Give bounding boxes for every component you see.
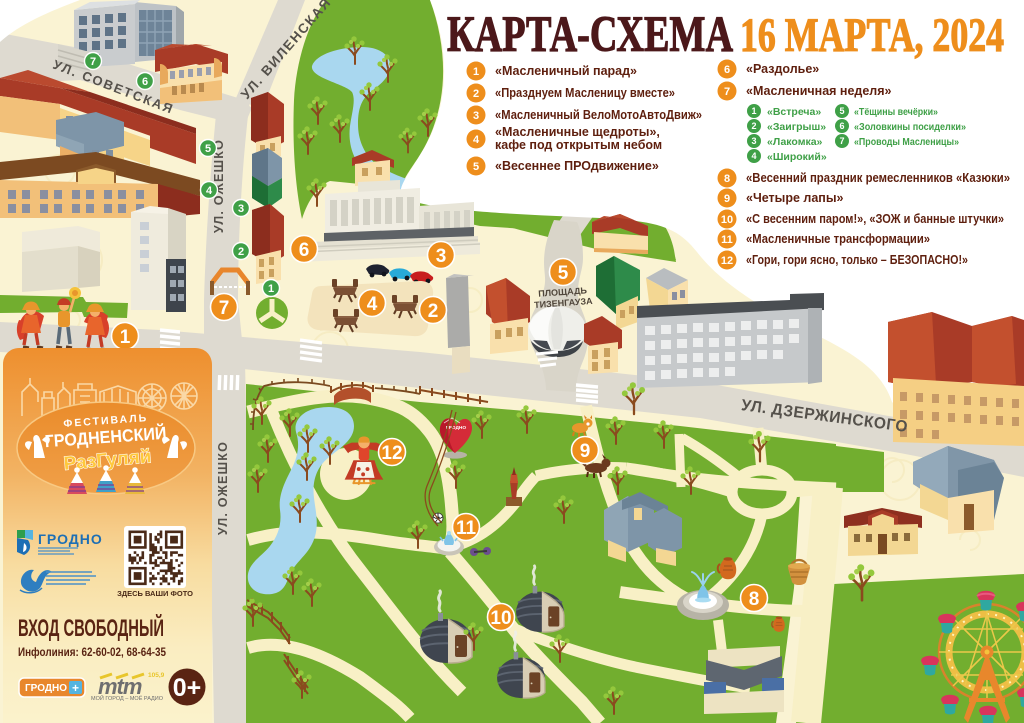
svg-text:16 МАРТА, 2024: 16 МАРТА, 2024 [740, 9, 1004, 62]
svg-text:«Масленичный ВелоМотоАвтоДвиж»: «Масленичный ВелоМотоАвтоДвиж» [495, 108, 702, 122]
svg-text:6: 6 [724, 64, 730, 76]
svg-text:ЗДЕСЬ ВАШИ ФОТО: ЗДЕСЬ ВАШИ ФОТО [117, 589, 193, 598]
svg-text:4: 4 [473, 134, 480, 146]
svg-text:3: 3 [751, 136, 756, 146]
svg-text:«Масленичная неделя»: «Масленичная неделя» [746, 84, 892, 98]
svg-text:8: 8 [724, 173, 730, 185]
svg-text:«Проводы Масленицы»: «Проводы Масленицы» [854, 136, 959, 148]
svg-text:+: + [72, 681, 79, 695]
svg-text:5: 5 [473, 161, 479, 173]
svg-text:МОЙ ГОРОД – МОЁ РАДИО: МОЙ ГОРОД – МОЁ РАДИО [91, 694, 164, 702]
svg-text:6: 6 [839, 121, 844, 131]
svg-text:6: 6 [299, 240, 310, 261]
svg-text:«Золовкины посиделки»: «Золовкины посиделки» [854, 121, 966, 133]
svg-text:«Четыре лапы»: «Четыре лапы» [746, 191, 843, 205]
svg-text:«Заигрыш»: «Заигрыш» [767, 121, 826, 133]
svg-text:2: 2 [238, 246, 244, 258]
svg-text:1: 1 [751, 106, 756, 116]
svg-text:5: 5 [205, 143, 211, 155]
svg-text:7: 7 [90, 56, 96, 68]
svg-text:3: 3 [238, 203, 244, 215]
svg-text:«Тёщины вечёрки»: «Тёщины вечёрки» [854, 106, 938, 118]
svg-text:7: 7 [724, 86, 730, 98]
svg-text:3: 3 [436, 246, 447, 267]
svg-text:КАРТА-СХЕМА: КАРТА-СХЕМА [447, 7, 733, 63]
svg-text:«Широкий»: «Широкий» [767, 151, 827, 163]
svg-text:«Встреча»: «Встреча» [767, 106, 821, 118]
svg-text:ГРОДНО: ГРОДНО [38, 531, 103, 547]
svg-text:9: 9 [724, 193, 730, 205]
svg-text:105,9: 105,9 [148, 672, 165, 679]
svg-text:«Масленичные трансформации»: «Масленичные трансформации» [746, 232, 930, 246]
svg-text:2: 2 [428, 301, 439, 322]
svg-text:2: 2 [473, 88, 479, 100]
svg-text:0+: 0+ [173, 674, 202, 702]
svg-text:11: 11 [456, 518, 477, 539]
svg-text:«Раздолье»: «Раздолье» [746, 62, 819, 76]
svg-text:«Празднуем Масленицу вместе»: «Празднуем Масленицу вместе» [495, 86, 675, 100]
svg-text:1: 1 [473, 66, 479, 78]
svg-text:12: 12 [381, 443, 402, 464]
svg-text:ВХОД СВОБОДНЫЙ: ВХОД СВОБОДНЫЙ [18, 614, 164, 642]
svg-text:7: 7 [839, 136, 844, 146]
svg-text:«Масленичный парад»: «Масленичный парад» [495, 64, 637, 78]
svg-text:6: 6 [142, 76, 148, 88]
svg-text:«Весенний праздник ремесленник: «Весенний праздник ремесленников «Казюки… [746, 171, 1010, 185]
svg-text:11: 11 [721, 234, 733, 246]
svg-text:«Лакомка»: «Лакомка» [767, 136, 823, 148]
svg-text:8: 8 [749, 589, 760, 610]
svg-text:4: 4 [751, 151, 756, 161]
svg-text:кафе под открытым небом: кафе под открытым небом [495, 138, 662, 152]
svg-text:«Масленичные щедроты»,: «Масленичные щедроты», [495, 125, 660, 139]
svg-text:Инфолиния: 62-60-02, 68-64-35: Инфолиния: 62-60-02, 68-64-35 [18, 645, 166, 659]
svg-text:2: 2 [751, 121, 756, 131]
svg-text:10: 10 [721, 214, 733, 226]
svg-text:«С весенним паром!», «ЗОЖ и ба: «С весенним паром!», «ЗОЖ и банные штучк… [746, 212, 1004, 226]
svg-text:7: 7 [219, 298, 230, 319]
svg-text:1: 1 [268, 283, 274, 295]
svg-text:9: 9 [580, 441, 591, 462]
svg-text:УЛ. ОЖЕШКО: УЛ. ОЖЕШКО [216, 441, 230, 535]
svg-text:«Гори, гори ясно, только – БЕЗ: «Гори, гори ясно, только – БЕЗОПАСНО!» [746, 253, 968, 267]
svg-text:10: 10 [490, 608, 511, 629]
svg-text:5: 5 [839, 106, 844, 116]
svg-text:«Весеннее ПРОдвижение»: «Весеннее ПРОдвижение» [495, 159, 659, 173]
svg-text:5: 5 [558, 263, 569, 284]
svg-text:ГРОДНО: ГРОДНО [446, 425, 466, 431]
svg-text:4: 4 [367, 294, 378, 315]
svg-text:ГРОДНО: ГРОДНО [25, 682, 67, 694]
svg-text:12: 12 [721, 255, 733, 267]
svg-text:3: 3 [473, 110, 479, 122]
svg-text:4: 4 [206, 185, 213, 197]
svg-text:1: 1 [120, 327, 131, 348]
